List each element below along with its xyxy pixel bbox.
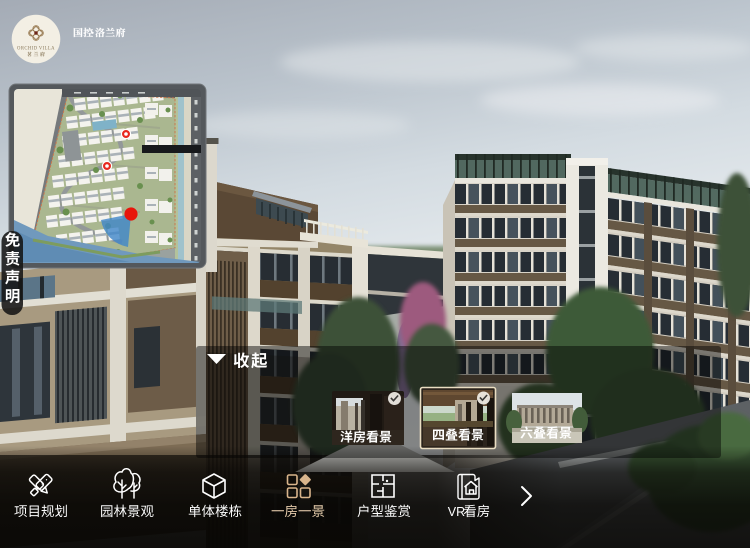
svg-text:ORCHID VILLA: ORCHID VILLA <box>17 47 55 52</box>
svg-text:VR: VR <box>448 505 465 519</box>
